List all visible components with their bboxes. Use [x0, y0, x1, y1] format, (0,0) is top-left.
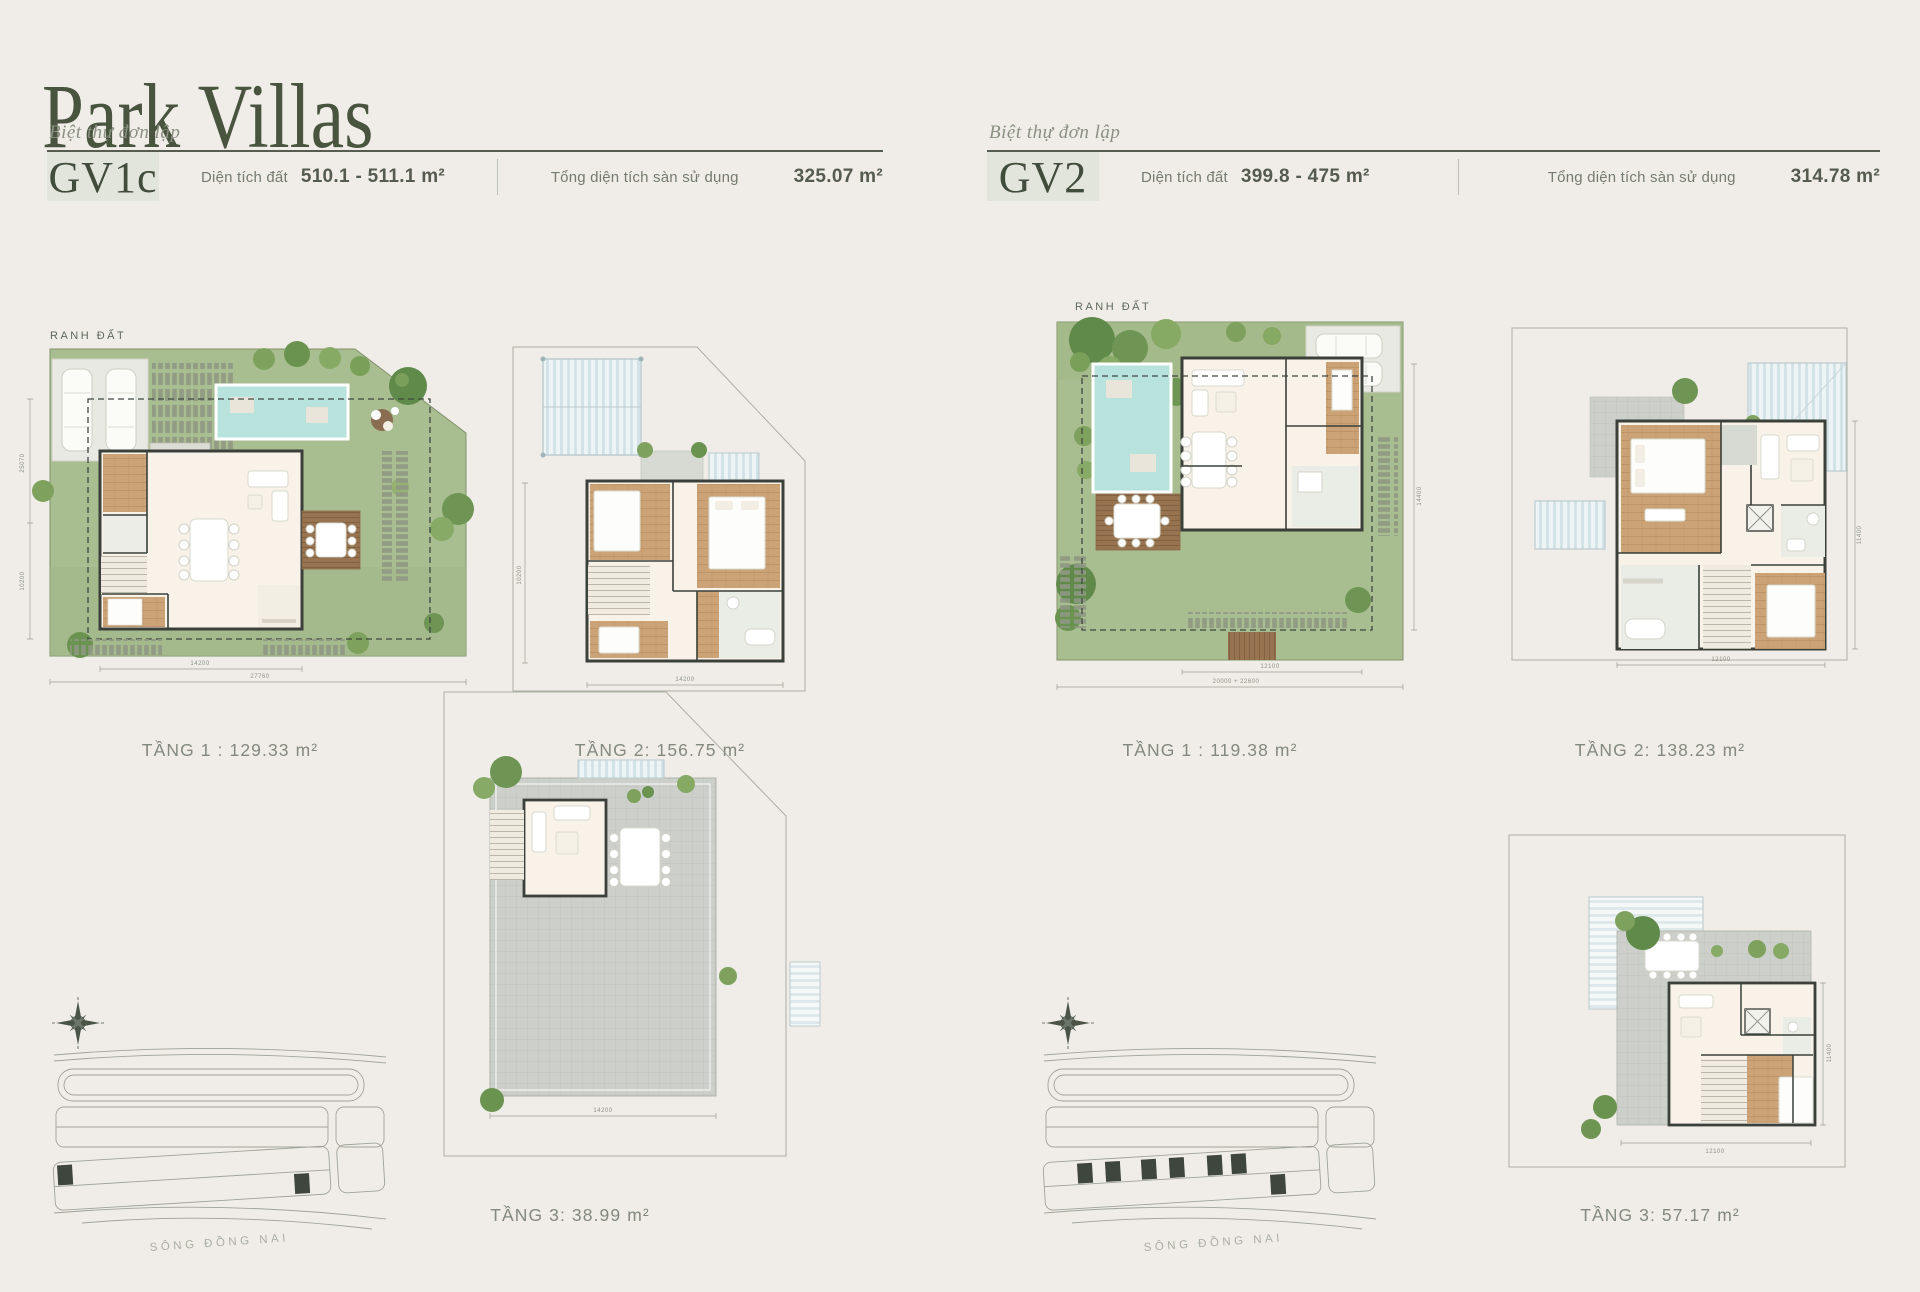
- svg-text:12100: 12100: [1711, 657, 1730, 663]
- river-label: SÔNG ĐỒNG NAI: [1143, 1231, 1283, 1254]
- gv2-floor-area: Tổng diện tích sàn sử dụng 314.78 m²: [1548, 166, 1880, 188]
- boundary-label: RANH ĐẤT: [50, 329, 126, 342]
- pergola: [578, 760, 664, 778]
- svg-text:11400: 11400: [1857, 525, 1863, 544]
- gv2-floor3-caption: TẦNG 3: 57.17 m²: [1485, 1205, 1835, 1226]
- house-floorplan: [1617, 421, 1825, 649]
- compass-rose-icon: [52, 997, 104, 1049]
- pergola: [790, 962, 820, 1026]
- parking-stripes: [1188, 612, 1348, 628]
- svg-text:10200: 10200: [517, 565, 523, 584]
- gv2-land-area: Diện tích đất 399.8 - 475 m²: [1141, 166, 1370, 188]
- gv2-header: Biệt thự đơn lập GV2 Diện tích đất 399.8…: [987, 122, 1880, 201]
- gv2-floor1-site-plan: RANH ĐẤT: [1040, 296, 1432, 700]
- gv2-code-badge: GV2: [987, 152, 1099, 201]
- svg-text:14200: 14200: [190, 661, 209, 667]
- svg-text:20000 + 22600: 20000 + 22600: [1213, 679, 1260, 685]
- gv1c-floor1-caption: TẦNG 1 : 129.33 m²: [55, 740, 405, 761]
- gv1c-floor-area: Tổng diện tích sàn sử dụng 325.07 m²: [551, 166, 883, 188]
- gv1c-floor2-caption: TẦNG 2: 156.75 m²: [485, 740, 835, 761]
- spec-divider: [1458, 159, 1459, 195]
- gv1c-floor2-plan: 10200 14200: [495, 333, 865, 707]
- gv2-floor2-plan: 12100 11400: [1495, 313, 1867, 677]
- house-floorplan: [1181, 358, 1362, 530]
- floor-area-label: Tổng diện tích sàn sử dụng: [1548, 169, 1736, 186]
- land-area-label: Diện tích đất: [201, 169, 288, 186]
- highlighted-plots: [57, 1150, 310, 1208]
- gv1c-code-badge: GV1c: [47, 152, 159, 201]
- land-area-value: 510.1 - 511.1 m²: [301, 166, 445, 188]
- land-area-value: 399.8 - 475 m²: [1241, 166, 1370, 188]
- svg-text:27760: 27760: [250, 674, 269, 680]
- house-floorplan: [100, 443, 302, 629]
- wood-deck: [302, 511, 360, 569]
- floor-area-label: Tổng diện tích sàn sử dụng: [551, 169, 739, 186]
- gv1c-floor3-caption: TẦNG 3: 38.99 m²: [395, 1205, 745, 1226]
- pergola: [541, 357, 644, 458]
- gv2-floor2-caption: TẦNG 2: 138.23 m²: [1485, 740, 1835, 761]
- svg-text:11400: 11400: [1827, 1043, 1833, 1062]
- gv2-location-map: SÔNG ĐỒNG NAI: [1032, 993, 1384, 1289]
- svg-text:12100: 12100: [1705, 1149, 1724, 1155]
- boundary-label: RANH ĐẤT: [1075, 300, 1151, 313]
- parking-stripes: [70, 639, 162, 655]
- gv1c-floor1-site-plan: RANH ĐẤT: [10, 323, 480, 697]
- floor-area-value: 314.78 m²: [1791, 166, 1880, 188]
- floor-area-value: 325.07 m²: [794, 166, 883, 188]
- svg-text:25070: 25070: [20, 453, 26, 472]
- gv2-floor3-plan: 12100 11400: [1495, 821, 1867, 1195]
- wood-walkway: [1228, 632, 1276, 660]
- pergola: [709, 453, 759, 481]
- gv2-floor1-caption: TẦNG 1 : 119.38 m²: [1035, 740, 1385, 761]
- compass-rose-icon: [1042, 997, 1094, 1049]
- gv1c-header: Biệt thự đơn lập GV1c Diện tích đất 510.…: [47, 122, 883, 201]
- gv1c-land-area: Diện tích đất 510.1 - 511.1 m²: [201, 166, 445, 188]
- gv1c-location-map: SÔNG ĐỒNG NAI: [42, 993, 394, 1289]
- river-label: SÔNG ĐỒNG NAI: [149, 1231, 289, 1254]
- house-floorplan: [587, 481, 783, 661]
- spec-divider: [497, 159, 498, 195]
- parking-stripes: [262, 639, 346, 655]
- land-area-label: Diện tích đất: [1141, 169, 1228, 186]
- svg-text:12100: 12100: [1260, 664, 1279, 670]
- brochure-page: Park Villas Biệt thự đơn lập GV1c Diện t…: [0, 0, 1920, 1292]
- dimensions: 14200: [490, 1108, 716, 1119]
- gv2-type-label: Biệt thự đơn lập: [989, 122, 1880, 144]
- svg-text:14200: 14200: [593, 1108, 612, 1114]
- parking-stripes: [382, 451, 408, 583]
- street-map: [53, 1048, 386, 1229]
- svg-text:14400: 14400: [1417, 486, 1423, 505]
- wood-deck: [1096, 494, 1180, 550]
- gv1c-type-label: Biệt thự đơn lập: [49, 122, 883, 144]
- parking-stripes: [1376, 436, 1398, 536]
- svg-text:10200: 10200: [20, 571, 26, 590]
- street-map: [1043, 1048, 1376, 1229]
- house-floorplan: [1669, 983, 1815, 1125]
